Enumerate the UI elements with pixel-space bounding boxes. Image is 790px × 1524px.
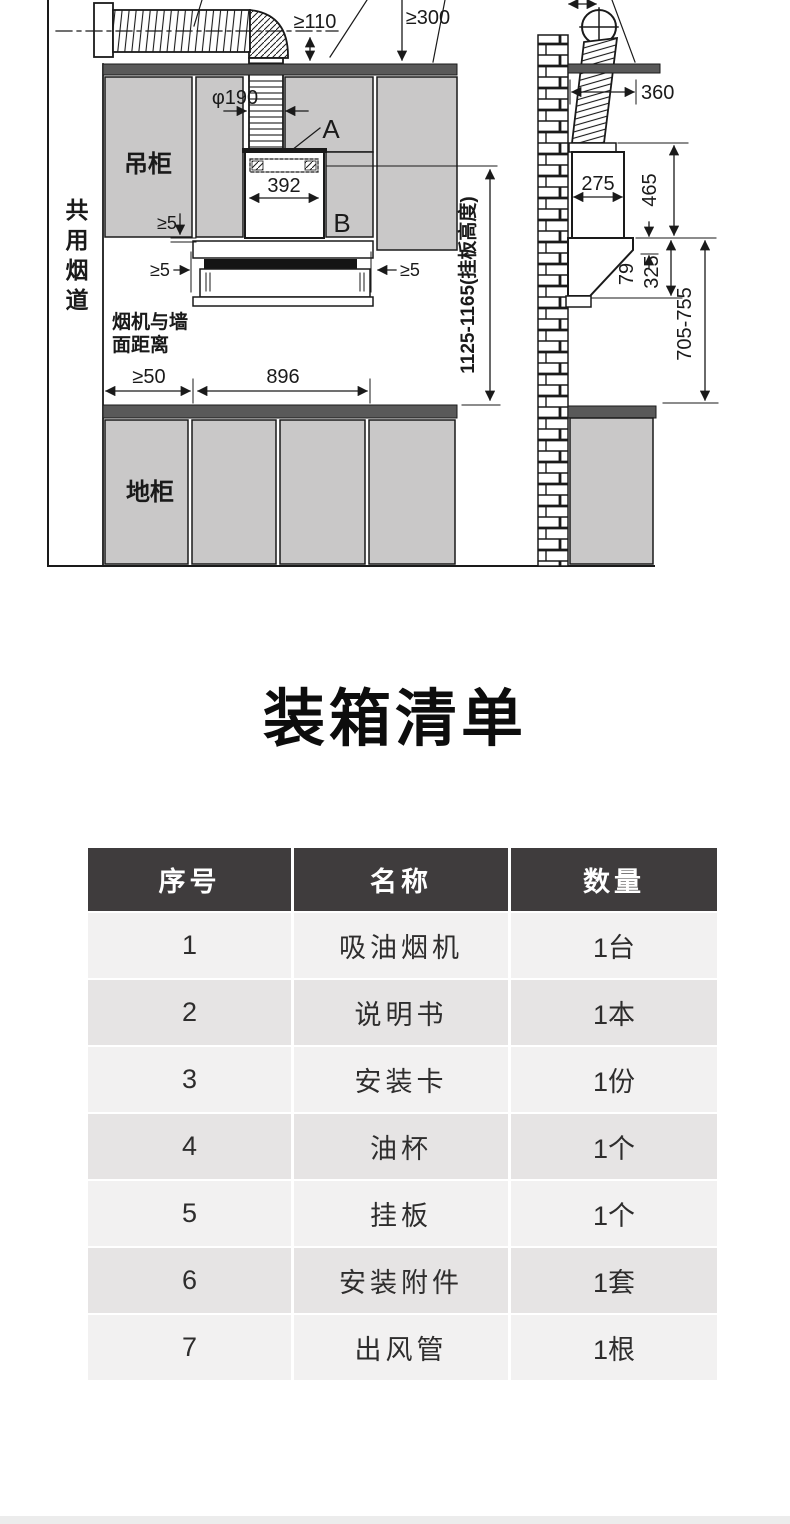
hood-body bbox=[200, 269, 370, 297]
column-header-name: 名称 bbox=[294, 848, 508, 911]
table-cell-no: 4 bbox=[88, 1114, 291, 1179]
dim-min5-vertical: ≥5 bbox=[157, 213, 177, 233]
table-cell-qty: 1根 bbox=[511, 1315, 717, 1380]
packing-list-title: 装箱清单 bbox=[0, 668, 790, 758]
page: 吊柜 bbox=[0, 0, 790, 1524]
side-base-cabinet bbox=[570, 418, 653, 564]
table-cell-no: 2 bbox=[88, 980, 291, 1045]
bottom-section-divider bbox=[0, 1516, 790, 1524]
table-cell-no: 6 bbox=[88, 1248, 291, 1313]
installation-diagram-svg: 吊柜 bbox=[0, 0, 790, 600]
dim-min5-left: ≥5 bbox=[150, 260, 170, 280]
installation-diagram: 吊柜 bbox=[0, 0, 790, 600]
packing-table-body: 1吸油烟机1台2说明书1本3安装卡1份4油杯1个5挂板1个6安装附件1套7出风管… bbox=[88, 913, 719, 1380]
packing-table: 序号 名称 数量 1吸油烟机1台2说明书1本3安装卡1份4油杯1个5挂板1个6安… bbox=[88, 848, 719, 1380]
dim-plate-height-range: 1125-1165(挂板高度) bbox=[456, 196, 479, 373]
table-cell-name: 安装卡 bbox=[294, 1047, 508, 1112]
dim-duct-diameter: φ190 bbox=[212, 87, 258, 109]
table-cell-qty: 1台 bbox=[511, 913, 717, 978]
table-cell-no: 7 bbox=[88, 1315, 291, 1380]
column-header-qty: 数量 bbox=[511, 848, 717, 911]
table-cell-name: 出风管 bbox=[294, 1315, 508, 1380]
upper-cabinet-label: 吊柜 bbox=[124, 151, 172, 178]
point-a-label: A bbox=[322, 114, 340, 144]
table-cell-qty: 1本 bbox=[511, 980, 717, 1045]
table-cell-qty: 1份 bbox=[511, 1047, 717, 1112]
dim-plate-width: 392 bbox=[267, 175, 300, 197]
dim-79: 79 bbox=[616, 263, 638, 285]
table-cell-qty: 1个 bbox=[511, 1181, 717, 1246]
dim-705-755: 705-755 bbox=[674, 287, 696, 360]
dim-min5-right: ≥5 bbox=[400, 260, 420, 280]
hood-chimney-top-plate bbox=[242, 148, 327, 153]
side-view-diagram: 360 275 465 79 325 705-755 bbox=[538, 0, 718, 566]
table-cell-qty: 1个 bbox=[511, 1114, 717, 1179]
table-cell-no: 3 bbox=[88, 1047, 291, 1112]
dim-min50: ≥50 bbox=[132, 366, 165, 388]
table-cell-name: 说明书 bbox=[294, 980, 508, 1045]
table-cell-no: 1 bbox=[88, 913, 291, 978]
table-cell-name: 挂板 bbox=[294, 1181, 508, 1246]
table-cell-qty: 1套 bbox=[511, 1248, 717, 1313]
mounting-plate-screw-right bbox=[305, 161, 316, 170]
dim-360: 360 bbox=[641, 82, 674, 104]
wall-distance-label-line1: 烟机与墙 bbox=[112, 310, 188, 333]
packing-table-header: 序号 名称 数量 bbox=[88, 848, 719, 911]
dim-min110: ≥110 bbox=[294, 11, 337, 33]
table-cell-name: 吸油烟机 bbox=[294, 913, 508, 978]
base-cabinet-door bbox=[192, 420, 276, 564]
upper-cabinet-right bbox=[377, 77, 457, 250]
brick-wall bbox=[538, 35, 568, 566]
side-hood-lip bbox=[566, 296, 591, 307]
duct-wall-collar bbox=[94, 3, 113, 57]
dim-465: 465 bbox=[639, 173, 661, 206]
shared-flue-label: 共用烟道 bbox=[58, 198, 92, 318]
side-cabinet-board bbox=[568, 64, 660, 73]
mounting-plate-screw-left bbox=[252, 161, 263, 170]
side-chimney bbox=[572, 152, 624, 238]
table-cell-name: 油杯 bbox=[294, 1114, 508, 1179]
dim-325: 325 bbox=[641, 255, 663, 288]
point-b-label: B bbox=[333, 208, 350, 238]
column-header-no: 序号 bbox=[88, 848, 291, 911]
dim-465-ext-lines bbox=[618, 143, 716, 238]
side-duct-collar bbox=[569, 143, 616, 152]
hood-top-band bbox=[193, 241, 373, 258]
dim-hood-width: 896 bbox=[266, 366, 299, 388]
side-duct bbox=[572, 38, 617, 143]
table-cell-no: 5 bbox=[88, 1181, 291, 1246]
hood-bottom-plate bbox=[193, 297, 373, 306]
side-countertop bbox=[568, 406, 656, 418]
hood-glass-strip bbox=[204, 259, 357, 269]
duct-elbow bbox=[249, 10, 288, 58]
countertop bbox=[103, 405, 457, 418]
base-cabinet-label: 地柜 bbox=[126, 479, 174, 506]
wall-distance-label-line2: 面距离 bbox=[112, 333, 169, 356]
base-cabinet-door bbox=[369, 420, 455, 564]
base-cabinet-door bbox=[280, 420, 365, 564]
table-cell-name: 安装附件 bbox=[294, 1248, 508, 1313]
dim-275: 275 bbox=[581, 173, 614, 195]
cabinet-top-board bbox=[103, 64, 457, 75]
